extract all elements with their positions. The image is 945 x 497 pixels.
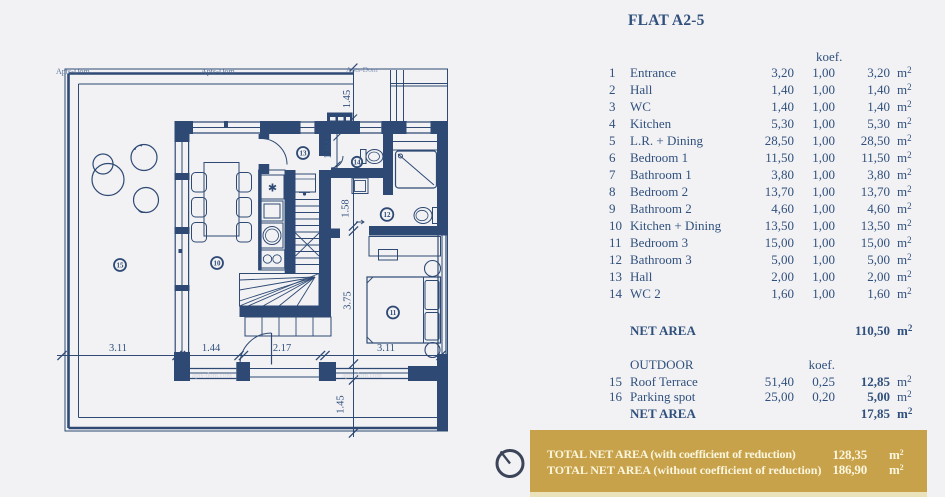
svg-text:3.11: 3.11 [109, 343, 127, 354]
svg-text:2.17: 2.17 [273, 343, 291, 354]
svg-text:10: 10 [214, 260, 222, 268]
svg-text:3.11: 3.11 [377, 343, 395, 354]
svg-text:1.58: 1.58 [341, 199, 352, 217]
svg-text:1.02: 1.02 [323, 140, 334, 158]
svg-text:1.44: 1.44 [202, 343, 221, 354]
svg-text:apts-dom.com: apts-dom.com [342, 372, 382, 380]
svg-text:3.75: 3.75 [343, 291, 354, 309]
svg-text:11: 11 [390, 309, 397, 317]
svg-text:12: 12 [384, 211, 392, 219]
svg-text:apts-dom.com: apts-dom.com [192, 372, 232, 380]
svg-text:1.45: 1.45 [336, 395, 347, 413]
svg-text:14: 14 [354, 159, 362, 167]
svg-text:Apts-Dom: Apts-Dom [56, 67, 91, 76]
svg-text:13: 13 [300, 150, 308, 158]
svg-text:1.45: 1.45 [342, 90, 353, 108]
svg-text:Apts-Dom: Apts-Dom [201, 67, 236, 76]
svg-text:✱: ✱ [268, 183, 277, 195]
svg-text:15: 15 [117, 262, 125, 270]
svg-text:Apts-Dom: Apts-Dom [346, 65, 378, 74]
